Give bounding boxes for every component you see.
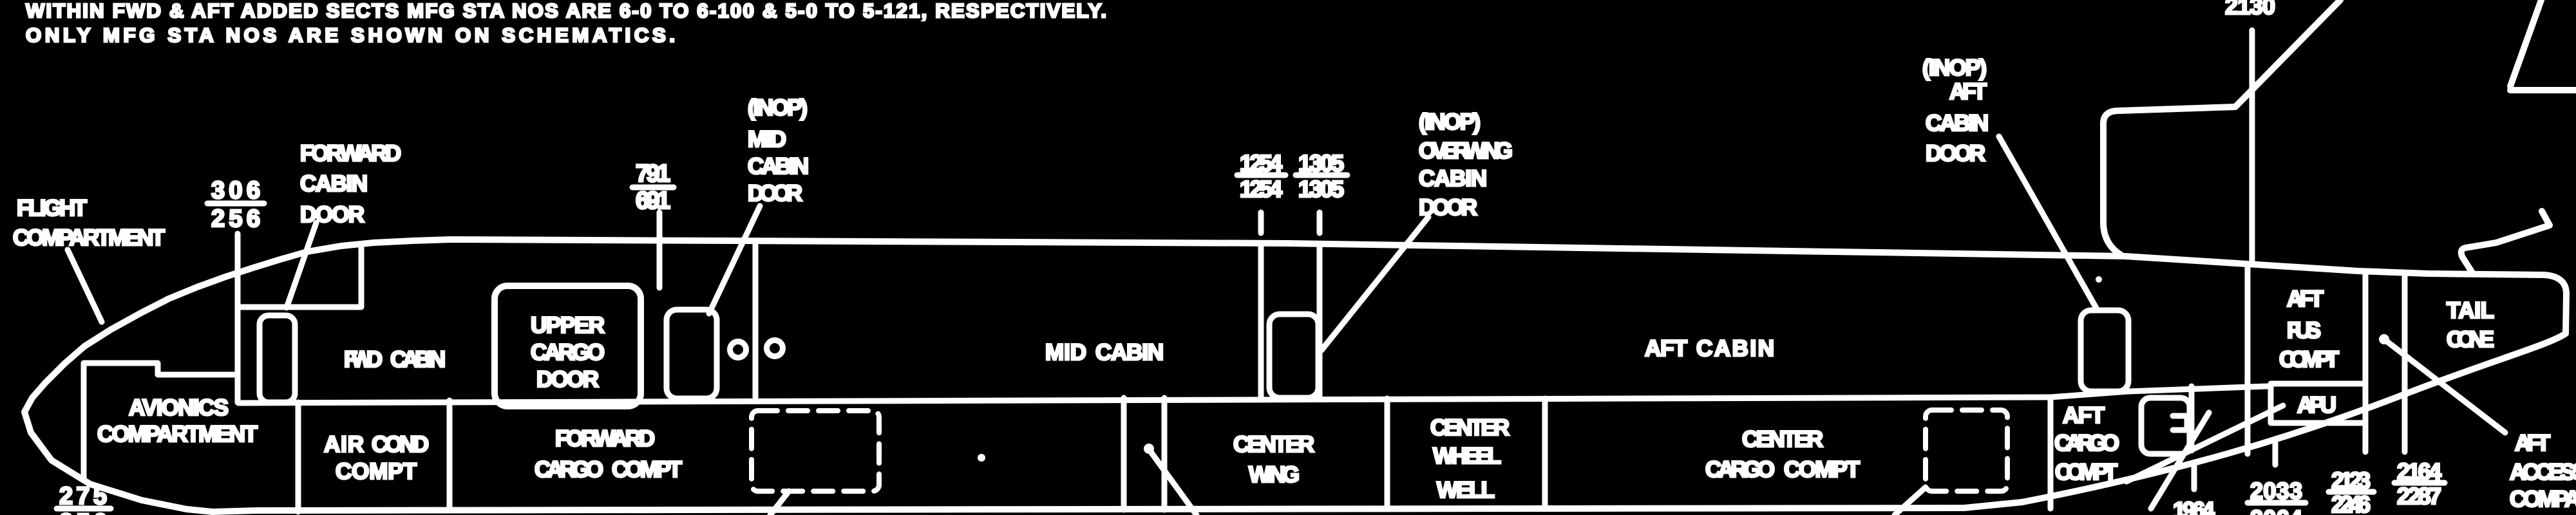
- svg-text:AFT: AFT: [1645, 336, 1687, 361]
- svg-text:CABIN: CABIN: [1696, 336, 1774, 361]
- svg-text:CENTER: CENTER: [1742, 427, 1823, 452]
- svg-text:CARGO: CARGO: [1705, 457, 1775, 482]
- svg-text:WITHIN FWD & AFT ADDED SECTS M: WITHIN FWD & AFT ADDED SECTS MFG STA NOS…: [26, 0, 1108, 22]
- svg-text:CARGO: CARGO: [2054, 431, 2119, 456]
- svg-text:CENTER: CENTER: [1430, 415, 1510, 440]
- svg-text:WELL: WELL: [1437, 478, 1495, 503]
- svg-text:COMPT: COMPT: [1784, 457, 1860, 482]
- svg-text:COND: COND: [372, 432, 429, 457]
- svg-text:MID: MID: [1045, 340, 1086, 365]
- svg-text:DOOR: DOOR: [1419, 195, 1477, 220]
- svg-text:306: 306: [211, 177, 260, 204]
- svg-text:UPPER: UPPER: [531, 313, 605, 338]
- svg-text:1964: 1964: [2173, 497, 2215, 515]
- svg-text:691: 691: [636, 187, 670, 214]
- svg-text:CABIN: CABIN: [300, 171, 368, 196]
- svg-text:FLIGHT: FLIGHT: [17, 196, 87, 221]
- svg-text:791: 791: [636, 160, 670, 187]
- svg-text:COMPT: COMPT: [2279, 347, 2339, 372]
- svg-text:WHEEL: WHEEL: [1433, 444, 1501, 469]
- svg-text:OVERWING: OVERWING: [1419, 138, 1513, 164]
- svg-text:CENTER: CENTER: [1233, 432, 1314, 457]
- svg-text:CONE: CONE: [2447, 327, 2494, 352]
- svg-text:TAIL: TAIL: [2447, 298, 2494, 323]
- svg-text:DOOR: DOOR: [300, 202, 365, 227]
- svg-text:CARGO: CARGO: [531, 340, 605, 365]
- svg-text:DOOR: DOOR: [748, 181, 802, 206]
- svg-text:WING: WING: [1249, 462, 1300, 487]
- svg-text:COMPARTMENT: COMPARTMENT: [2510, 487, 2576, 512]
- svg-text:AFT: AFT: [1949, 79, 1987, 104]
- svg-text:AFT: AFT: [2515, 431, 2550, 456]
- svg-text:COMPT: COMPT: [2055, 460, 2117, 485]
- svg-text:(INOP): (INOP): [748, 95, 808, 120]
- svg-text:ONLY MFG STA NOS ARE SHOWN ON: ONLY MFG STA NOS ARE SHOWN ON SCHEMATICS…: [26, 24, 676, 46]
- svg-text:FUS: FUS: [2287, 318, 2321, 343]
- svg-text:MID: MID: [748, 127, 786, 152]
- svg-text:CARGO: CARGO: [535, 457, 603, 482]
- svg-text:CABIN: CABIN: [390, 347, 446, 372]
- svg-text:2130: 2130: [2225, 0, 2275, 19]
- svg-text:FWD: FWD: [344, 347, 383, 372]
- svg-text:1305: 1305: [1298, 176, 1344, 202]
- svg-text:COMPARTMENT: COMPARTMENT: [13, 225, 165, 250]
- svg-text:1254: 1254: [1240, 176, 1282, 202]
- svg-text:DOOR: DOOR: [536, 367, 599, 392]
- svg-text:CABIN: CABIN: [1926, 111, 1989, 136]
- svg-text:AVIONICS: AVIONICS: [129, 395, 229, 420]
- svg-text:256: 256: [211, 205, 260, 232]
- svg-text:FORWARD: FORWARD: [555, 426, 655, 451]
- svg-text:2246: 2246: [2331, 491, 2371, 515]
- svg-text:COMPT: COMPT: [336, 459, 417, 484]
- svg-text:AFT: AFT: [2063, 403, 2105, 428]
- svg-text:APU: APU: [2297, 393, 2336, 418]
- svg-text:256: 256: [59, 509, 107, 515]
- svg-text:AIR: AIR: [324, 432, 364, 457]
- svg-text:2287: 2287: [2397, 483, 2441, 509]
- svg-text:AFT: AFT: [2287, 286, 2324, 312]
- svg-text:COMPT: COMPT: [612, 457, 682, 482]
- svg-text:(INOP): (INOP): [1419, 109, 1481, 135]
- svg-text:2064: 2064: [2250, 505, 2302, 515]
- svg-text:CABIN: CABIN: [748, 154, 809, 179]
- svg-text:CABIN: CABIN: [1095, 340, 1164, 365]
- svg-text:FORWARD: FORWARD: [300, 141, 401, 166]
- svg-text:(INOP): (INOP): [1922, 55, 1987, 80]
- svg-text:CABIN: CABIN: [1419, 166, 1487, 191]
- svg-text:DOOR: DOOR: [1926, 141, 1985, 166]
- svg-text:ACCESS: ACCESS: [2510, 460, 2576, 485]
- svg-text:COMPARTMENT: COMPARTMENT: [97, 422, 258, 447]
